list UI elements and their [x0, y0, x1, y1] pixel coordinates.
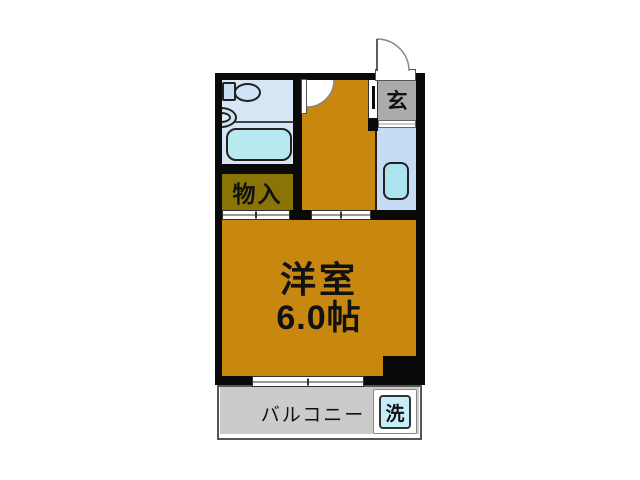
washer-label: 洗 [385, 399, 404, 426]
entrance-area: 玄 [378, 80, 416, 120]
sliding-door-tick [255, 212, 257, 219]
main-room-size: 6.0帖 [276, 300, 361, 337]
wall-door-row-mid [290, 210, 311, 220]
window-tick [307, 378, 309, 385]
entrance-step-line [379, 124, 415, 125]
balcony-window [252, 376, 364, 387]
entrance-door-swing-area [377, 39, 409, 71]
wall-top-left [215, 73, 377, 80]
kitchen-sink [383, 162, 409, 200]
hall-kitchen-divider [375, 131, 377, 210]
sliding-door-tick [340, 212, 342, 219]
entrance-partition-wall [372, 86, 375, 109]
wall-bottom-left [215, 376, 252, 385]
storage-room: 物入 [222, 174, 293, 210]
main-room-label: 洋室 [280, 259, 358, 300]
main-room: 洋室 6.0帖 [222, 220, 416, 376]
storage-sliding-door [222, 210, 290, 220]
balcony-label: バルコニー [240, 400, 386, 427]
bathroom-door-leaf [301, 79, 307, 114]
wall-left [215, 73, 222, 385]
bathtub [226, 128, 292, 161]
toilet-bowl [234, 83, 261, 102]
entrance-partition [368, 80, 378, 118]
wall-right [416, 73, 425, 385]
entrance-step [378, 120, 416, 128]
storage-label: 物入 [233, 175, 283, 209]
entrance-door-leaf [375, 69, 416, 81]
wall-bathroom-storage [215, 164, 302, 174]
floor-plan: バルコニー 洗 物入 玄 洋室 6.0帖 [0, 0, 640, 480]
hallway-floor [302, 80, 375, 210]
room-sliding-door [311, 210, 371, 220]
wall-door-row-right [371, 210, 425, 220]
entrance-label: 玄 [387, 85, 408, 115]
wall-stub-entrance [368, 118, 378, 131]
washing-machine-box: 洗 [379, 395, 411, 429]
wall-pillar-bottom-right [383, 356, 425, 385]
entrance-door-arc [377, 39, 409, 71]
